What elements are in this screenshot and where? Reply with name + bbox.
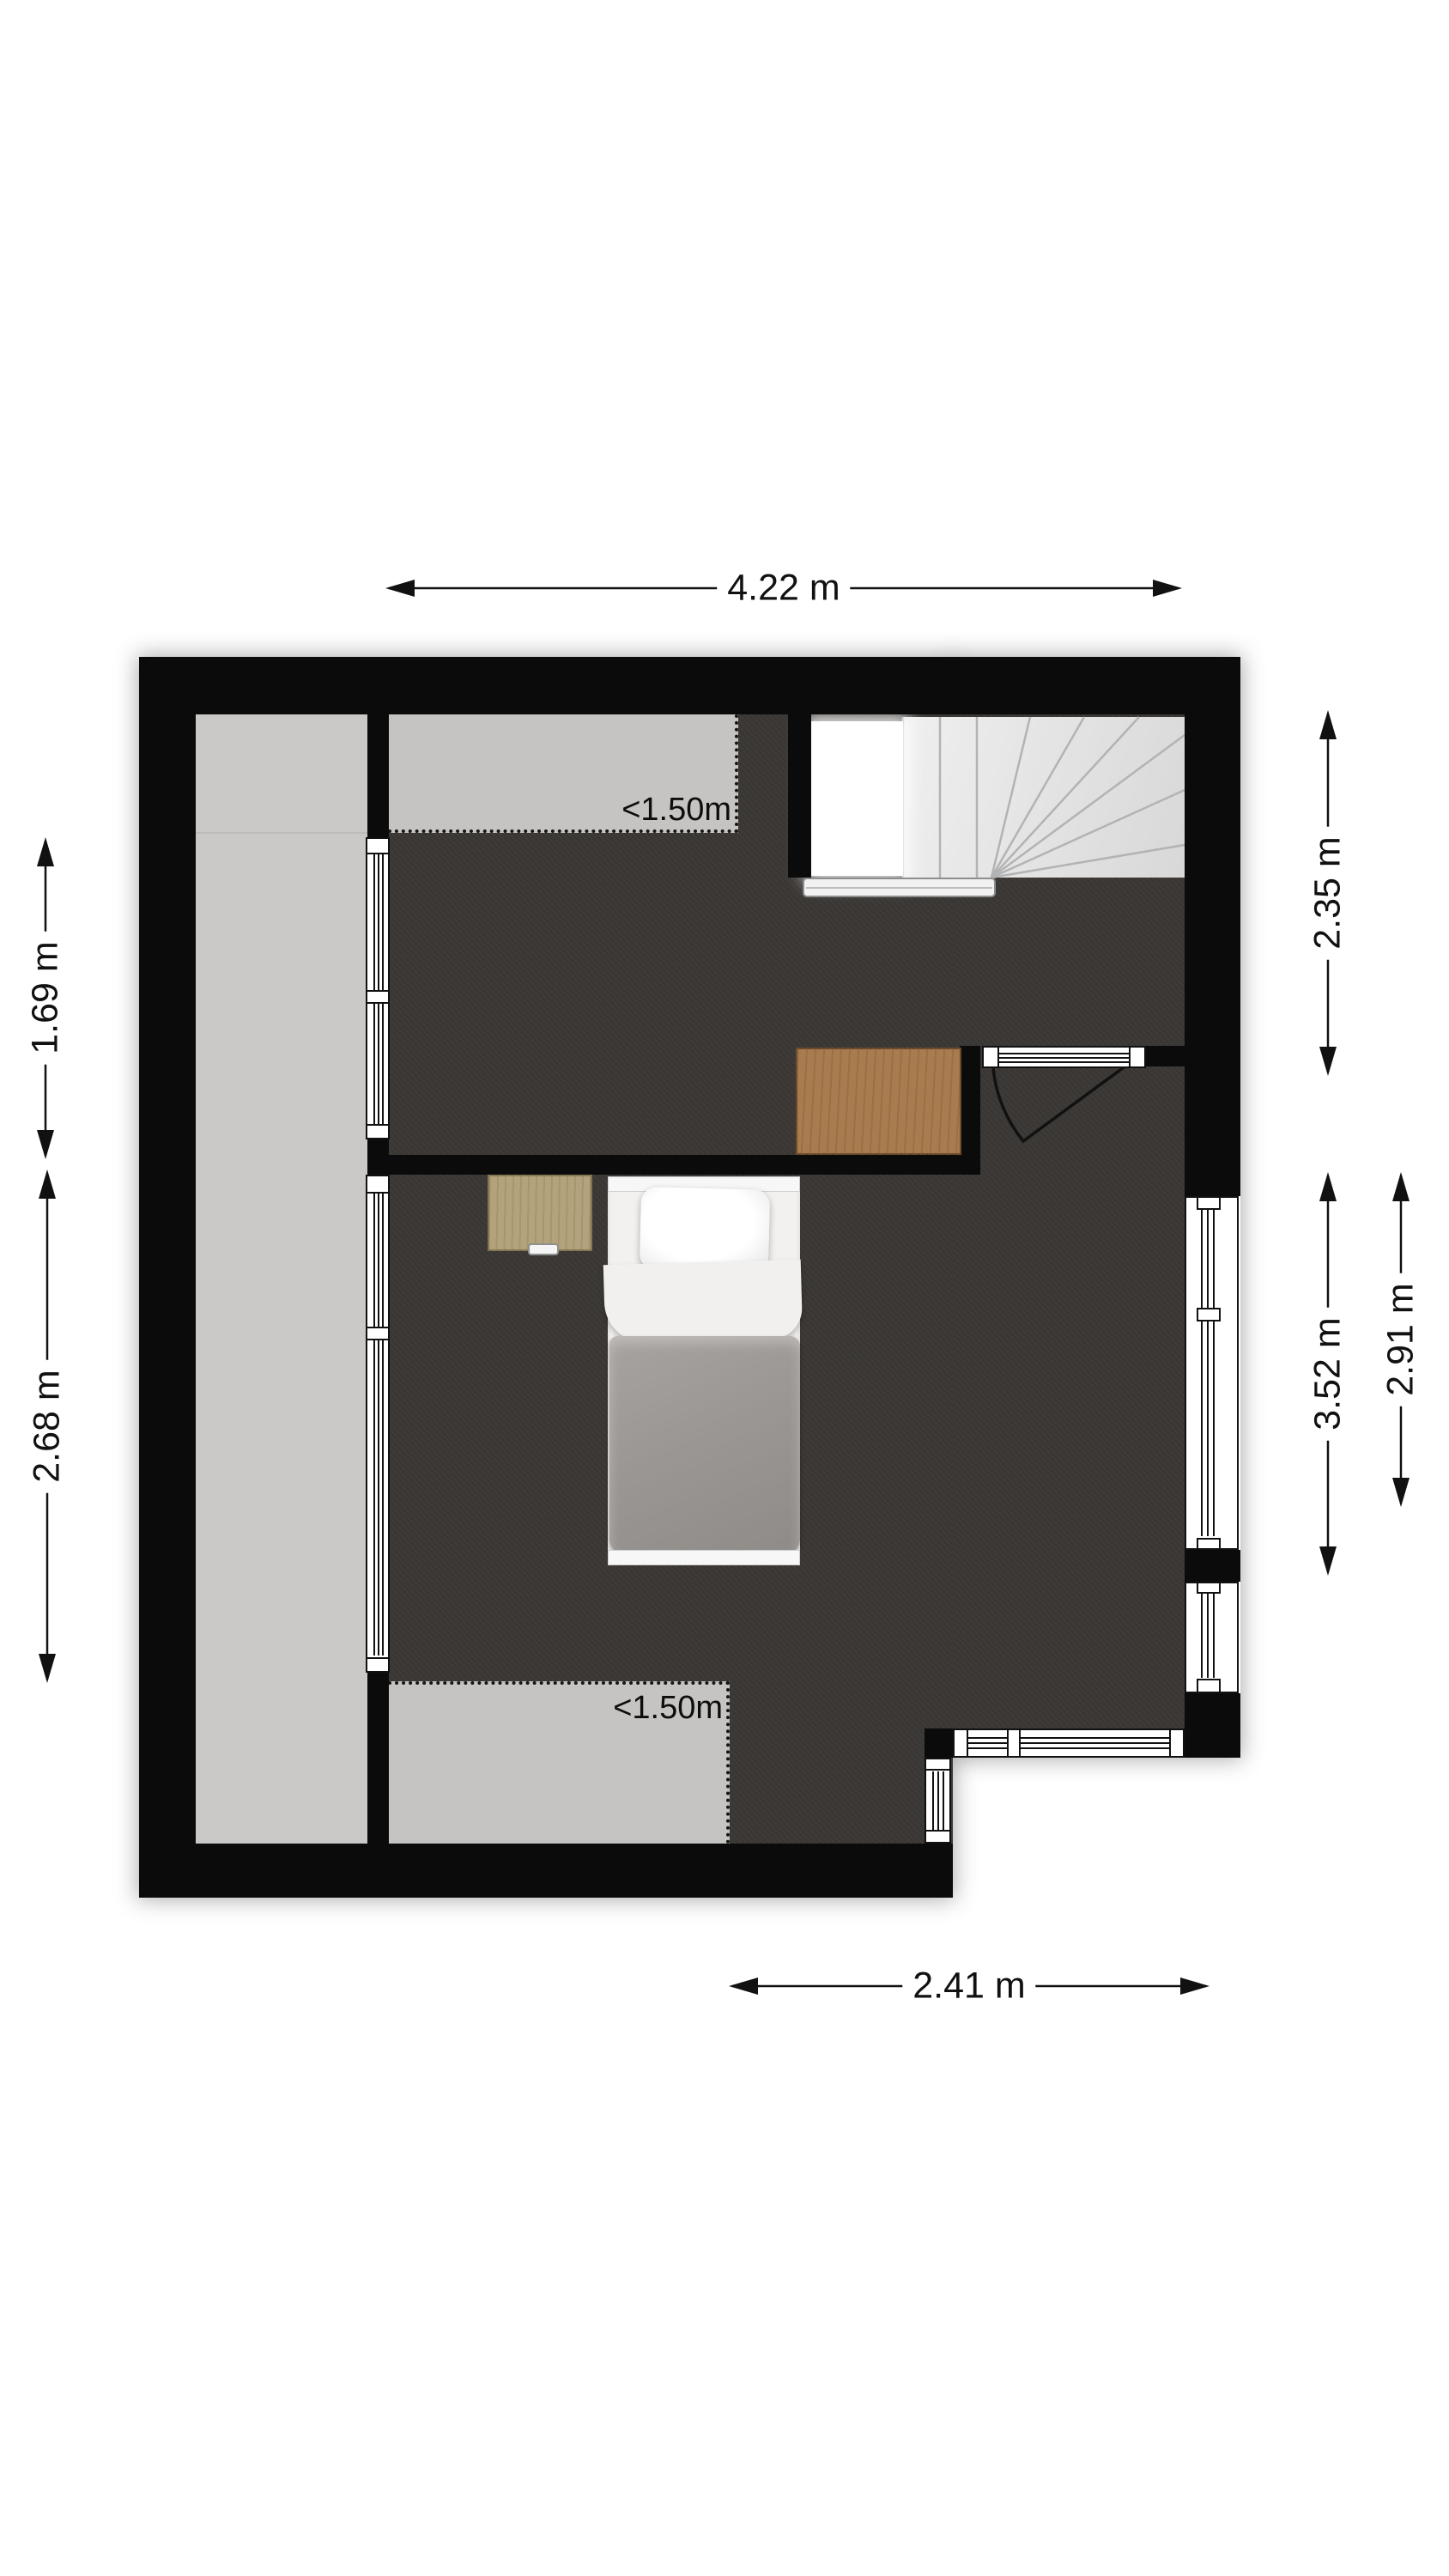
window-knee-lower xyxy=(366,1175,390,1673)
bed xyxy=(608,1176,800,1565)
dimension-left-lower-label: 2.68 m xyxy=(27,1359,67,1492)
wall-left xyxy=(139,657,196,1898)
wall-right-upper xyxy=(1185,657,1240,1196)
dimension-right-outer-label: 2.91 m xyxy=(1380,1273,1421,1406)
desk-small xyxy=(488,1175,592,1251)
wall-knee-top xyxy=(367,714,389,837)
desk-large xyxy=(796,1048,961,1155)
bed-sheet-fold xyxy=(603,1260,803,1344)
window-right-upper xyxy=(1185,1196,1239,1550)
window-bottom-right xyxy=(953,1728,1185,1758)
bed-footboard xyxy=(608,1550,800,1565)
wall-knee-mid xyxy=(367,1139,389,1175)
bed-duvet xyxy=(609,1336,800,1553)
window-knee-upper xyxy=(366,837,390,1139)
wall-bottom-right-corner-block xyxy=(925,1728,953,1758)
wall-right-corner xyxy=(1185,1693,1240,1758)
dimension-right-inner-label: 3.52 m xyxy=(1307,1307,1348,1440)
wall-right-mid xyxy=(1185,1550,1240,1582)
floor-plan-canvas: <1.50m <1.50m xyxy=(0,0,1449,2576)
bed-pillow xyxy=(640,1187,770,1273)
window-right-lower xyxy=(1185,1582,1239,1693)
wall-top xyxy=(139,657,1240,714)
wall-knee-bottom xyxy=(367,1673,389,1844)
door-leaf xyxy=(985,1046,1143,1068)
dimension-left-upper-label: 1.69 m xyxy=(25,931,65,1064)
dimension-right-upper-label: 2.35 m xyxy=(1307,826,1348,959)
wall-bottom xyxy=(139,1844,953,1898)
window-step-side xyxy=(925,1758,951,1844)
dimension-bottom-label: 2.41 m xyxy=(902,1965,1035,2006)
desk-drawer-handle xyxy=(528,1243,559,1255)
dimension-top-label: 4.22 m xyxy=(717,568,850,608)
